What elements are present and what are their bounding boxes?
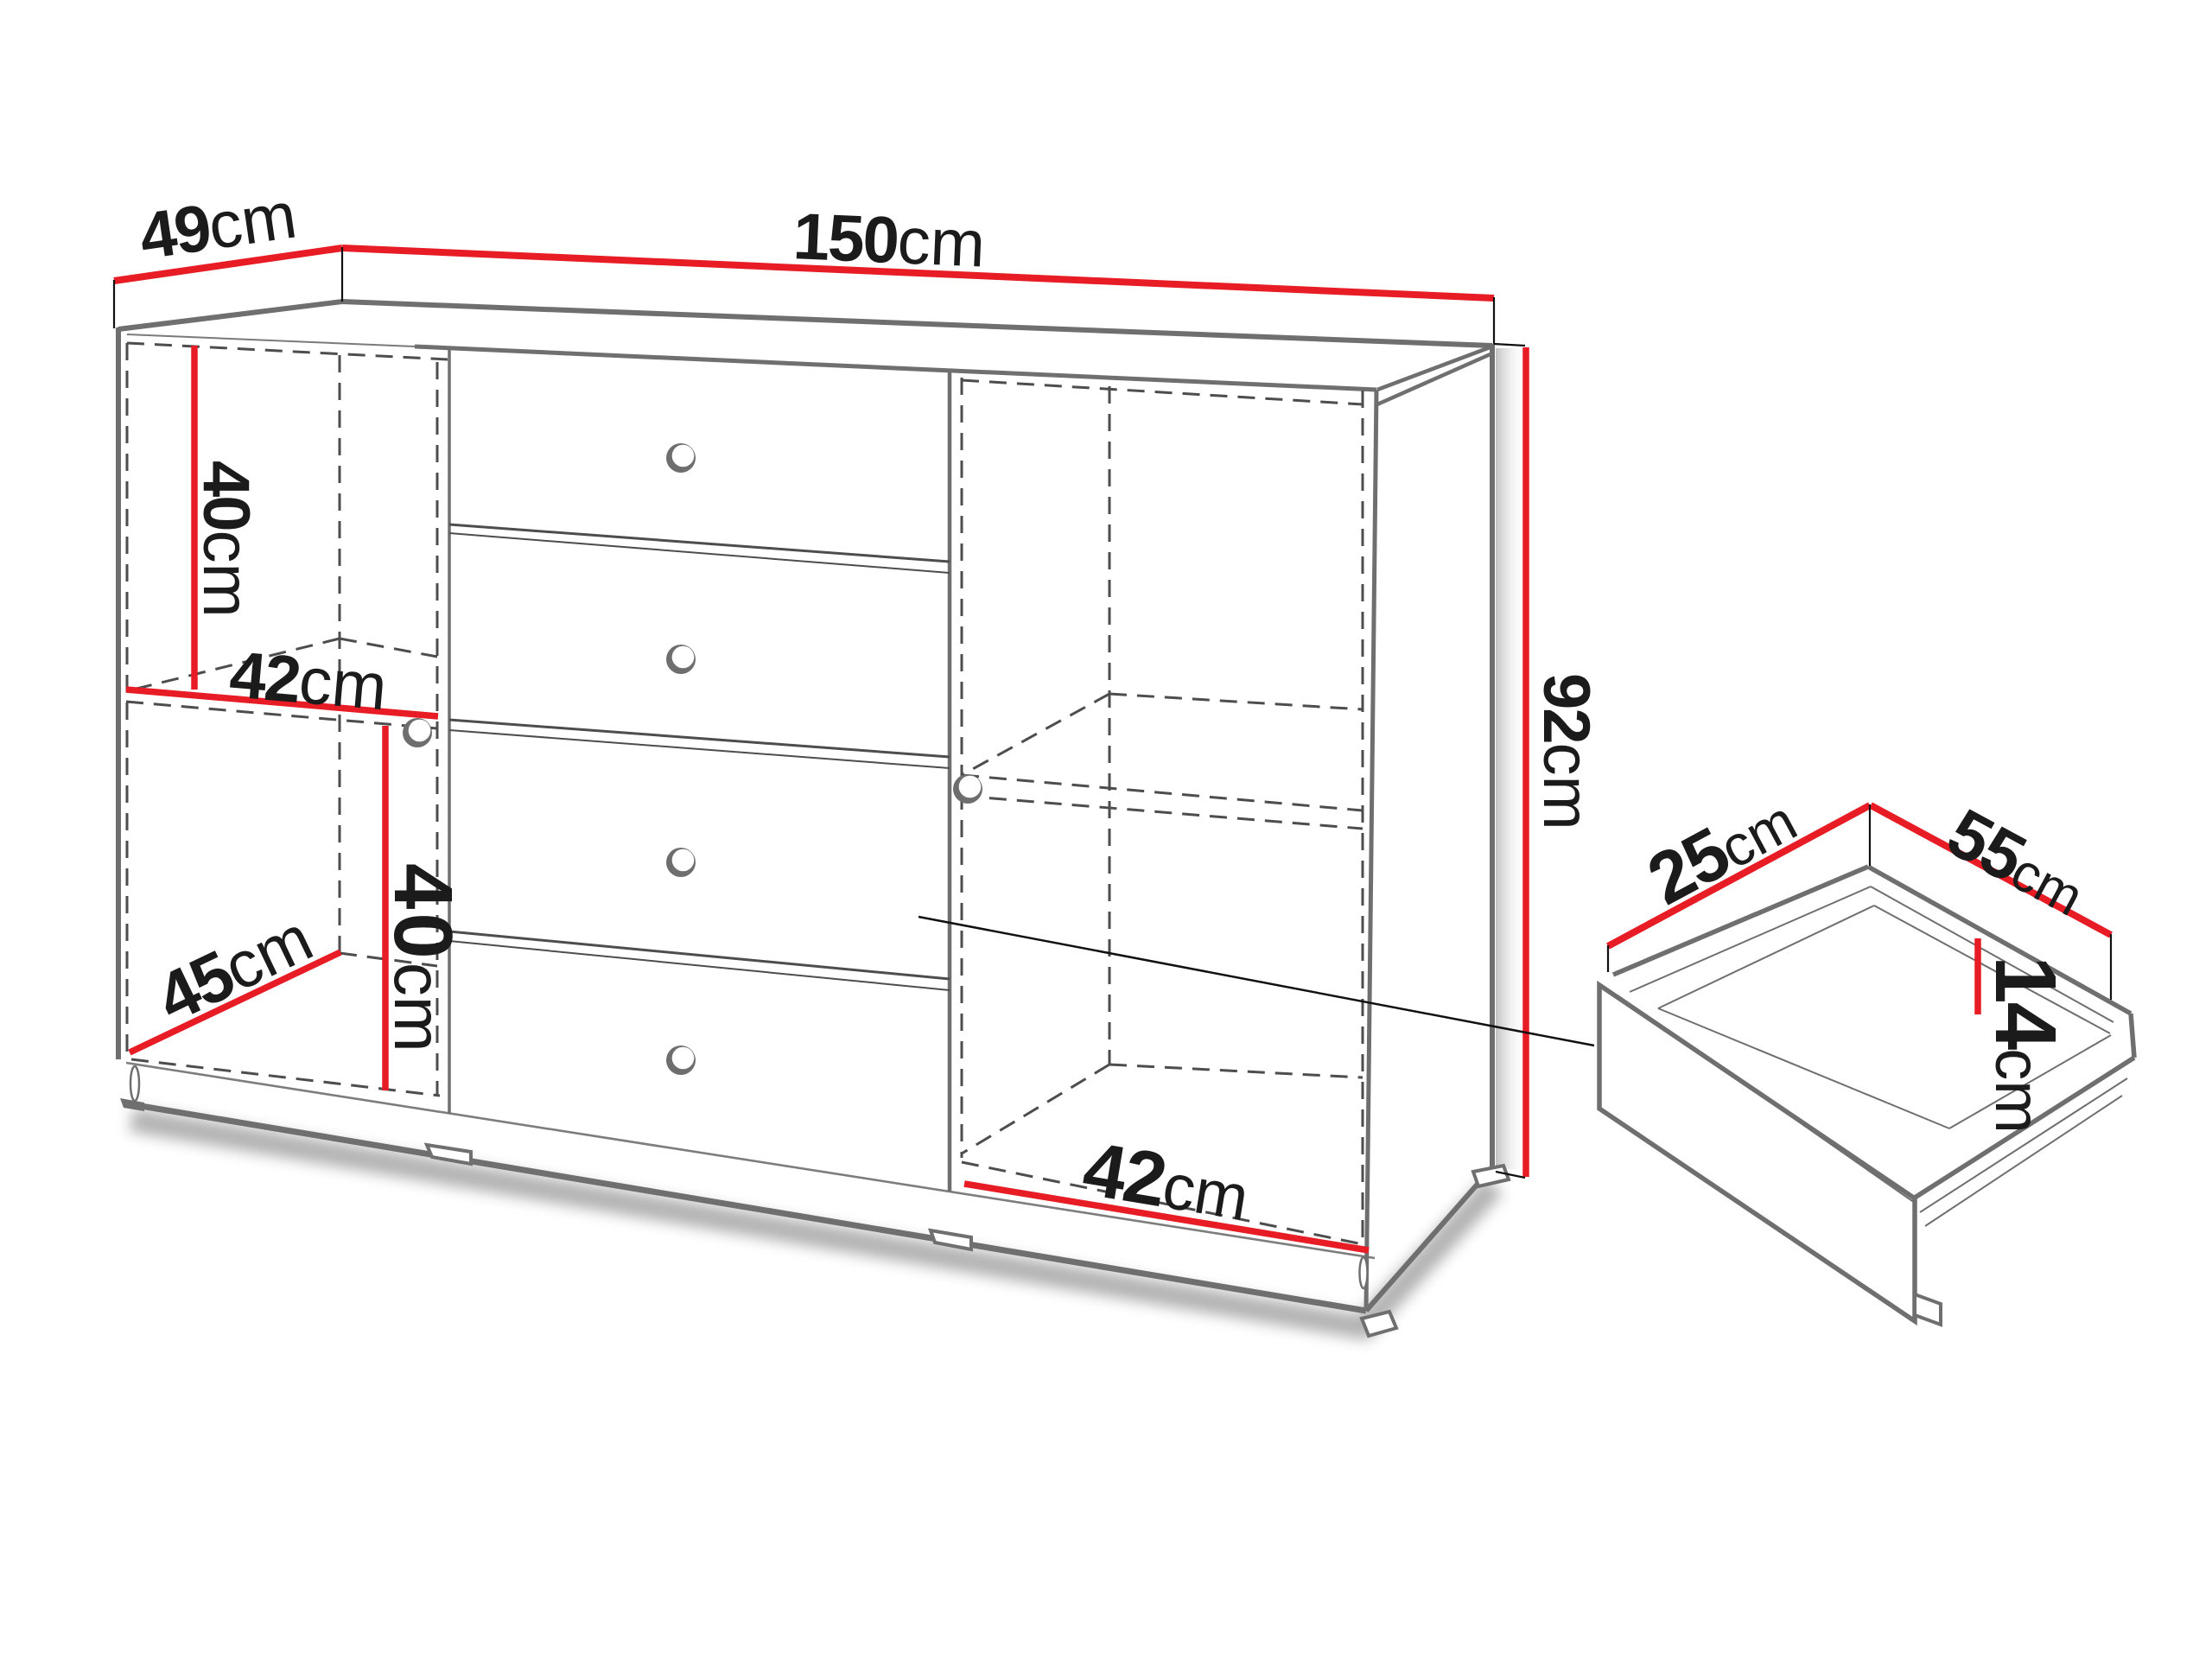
svg-text:150cm: 150cm [791, 200, 987, 282]
svg-text:40cm: 40cm [189, 461, 263, 618]
svg-text:42cm: 42cm [227, 638, 390, 724]
svg-text:92cm: 92cm [1529, 673, 1603, 830]
svg-text:40cm: 40cm [377, 863, 469, 1052]
